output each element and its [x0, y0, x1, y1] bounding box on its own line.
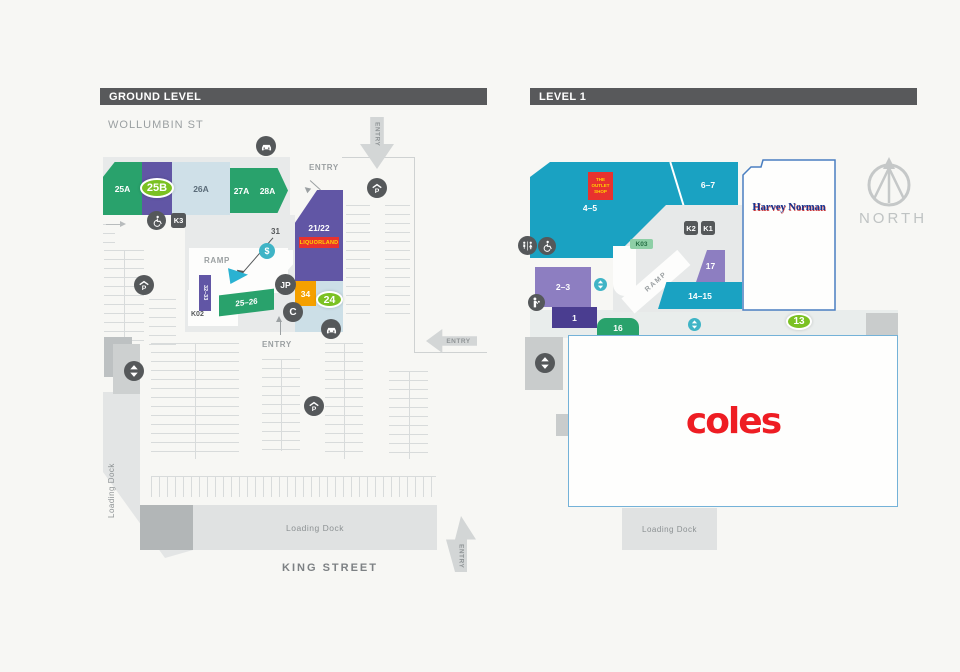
entry-label: ENTRY: [262, 340, 292, 349]
badge-25b: 25B: [140, 178, 174, 198]
c-icon: C: [283, 302, 303, 322]
wheelchair-icon: [147, 211, 166, 230]
coles-logo: coles: [686, 401, 780, 442]
mall-map-page: { "colors": { "header_bar": "#58595b", "…: [0, 0, 960, 672]
parking-bays: [149, 299, 176, 346]
kiosk-badge-k1: K1: [701, 221, 715, 235]
entry-arrow-label: ENTRY: [458, 544, 465, 568]
shop-14-15: 14–15: [658, 282, 742, 309]
lift-icon: [688, 318, 701, 331]
outlet-shop-label: THE OUTLET SHOP: [588, 172, 613, 200]
parents-room-icon: [528, 294, 545, 311]
coles-store: coles: [568, 335, 898, 507]
shop-21-22: 21/22: [295, 190, 343, 281]
toilets-icon: [518, 236, 537, 255]
level1-header: LEVEL 1: [530, 88, 917, 105]
badge-24: 24: [316, 291, 343, 308]
shop-31-label: 31: [271, 227, 280, 236]
two-way-traffic-icon: [535, 353, 555, 373]
entry-pointer-line: [310, 180, 321, 190]
shop-4-5-label: 4–5: [580, 202, 600, 214]
car-icon: [321, 319, 341, 339]
shop-26a: 26A: [172, 162, 230, 215]
entry-pointer-arrowhead: [276, 316, 282, 322]
svg-text:P: P: [375, 187, 380, 193]
parking-bays: [389, 371, 428, 459]
kiosk-badge-k2: K2: [684, 221, 698, 235]
entry-pointer-arrowhead: [303, 185, 311, 193]
shop-6-7-label: 6–7: [698, 179, 718, 191]
parking-bays: [385, 205, 410, 320]
one-way-arrow: [106, 224, 120, 225]
parking-icon: P: [134, 275, 154, 295]
ground-level-header: GROUND LEVEL: [100, 88, 487, 105]
entry-arrow-up: ENTRY: [446, 516, 476, 572]
kiosk-badge-k3: K3: [171, 213, 186, 228]
parking-bays: [151, 343, 239, 459]
parking-bays: [103, 224, 115, 248]
entry-arrow-down: ENTRY: [360, 117, 394, 169]
parking-icon: P: [367, 178, 387, 198]
kiosk-k02-label: K02: [191, 311, 204, 318]
loading-dock-label: Loading Dock: [642, 525, 697, 534]
parking-bays: [151, 476, 436, 497]
svg-text:P: P: [312, 405, 317, 411]
boundary-line: [414, 352, 487, 353]
parking-icon: P: [304, 396, 324, 416]
street-label-wollumbin: WOLLUMBIN ST: [108, 119, 204, 131]
badge-13: 13: [786, 313, 812, 330]
entry-pointer-line: [280, 322, 281, 335]
parking-bays: [325, 343, 363, 459]
kiosk-badge-k03: K03: [630, 239, 653, 249]
svg-text:P: P: [142, 284, 147, 290]
jp-icon: JP: [275, 274, 296, 295]
parking-bays: [104, 250, 144, 347]
dock-block: [140, 505, 193, 550]
loading-dock-label: Loading Dock: [286, 523, 344, 533]
boundary-line: [414, 157, 415, 352]
shop-27a: 27A: [230, 168, 253, 213]
harvey-norman-store: Harvey Norman: [742, 159, 836, 311]
shop-32-33: 32–33: [199, 275, 211, 311]
entry-arrow-left: ENTRY: [426, 329, 477, 353]
harvey-norman-logo: Harvey Norman: [748, 202, 830, 213]
atm-icon: $: [259, 243, 275, 259]
parking-bays: [346, 205, 370, 317]
entry-label: ENTRY: [309, 163, 339, 172]
loading-dock: Loading Dock: [622, 508, 717, 550]
shop-32-33-label: 32–33: [202, 285, 208, 300]
loading-dock-label-vertical: Loading Dock: [107, 428, 116, 518]
shop-34: 34: [295, 281, 316, 306]
lift-icon: [594, 278, 607, 291]
shop-25a: 25A: [103, 162, 142, 215]
entry-arrow-label: ENTRY: [374, 122, 381, 146]
entry-arrow-label: ENTRY: [446, 338, 470, 345]
liquorland-label: LIQUORLAND: [299, 237, 339, 248]
two-way-traffic-icon: [124, 361, 144, 381]
parking-bays: [262, 359, 300, 451]
car-icon: [256, 136, 276, 156]
shop-1: 1: [552, 307, 597, 328]
wheelchair-icon: [538, 237, 556, 255]
north-label: NORTH: [855, 210, 931, 227]
one-way-arrowhead: [120, 221, 126, 227]
north-compass-icon: [866, 155, 914, 209]
loading-dock: Loading Dock: [193, 505, 437, 550]
ramp-label: RAMP: [204, 256, 230, 265]
street-label-king: KING STREET: [245, 562, 415, 574]
